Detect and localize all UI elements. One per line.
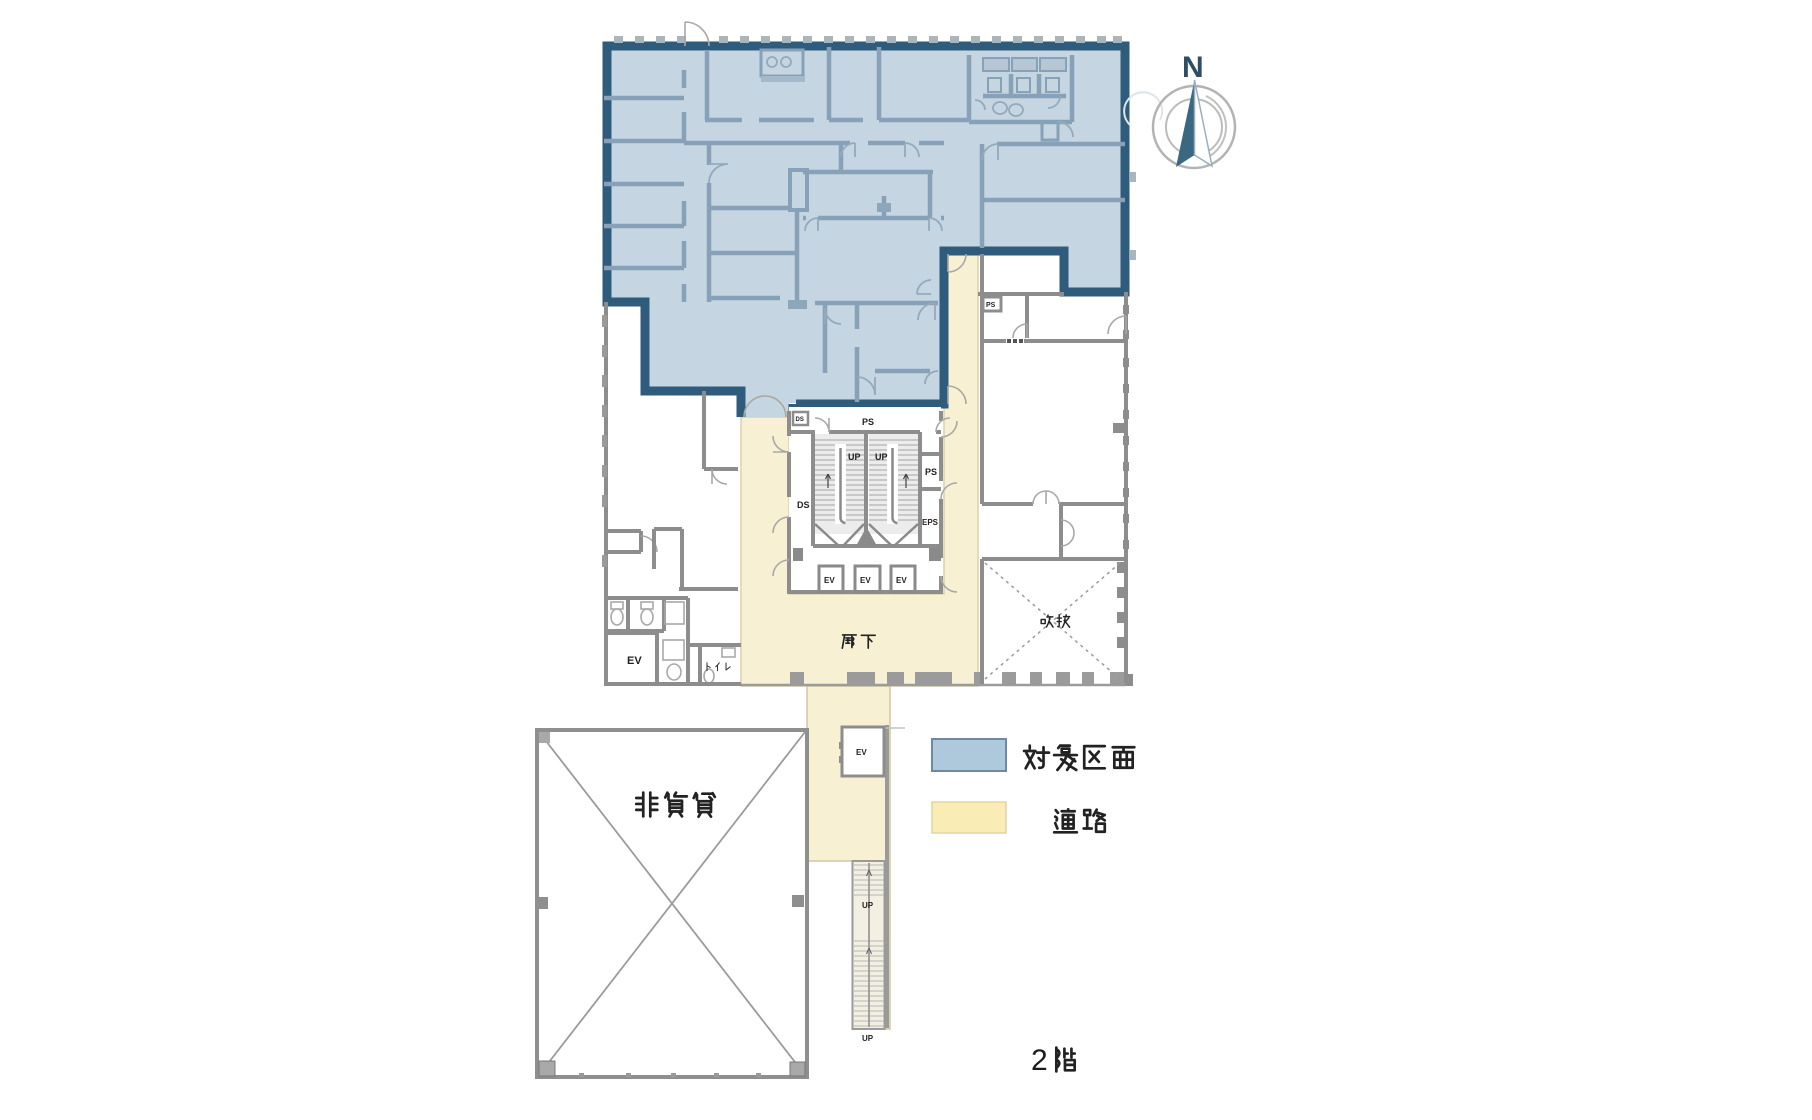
svg-text:2: 2: [1031, 1044, 1048, 1077]
svg-text:EV: EV: [856, 748, 867, 757]
svg-text:DS: DS: [796, 417, 804, 423]
svg-text:UP: UP: [875, 452, 888, 462]
svg-text:UP: UP: [862, 901, 874, 910]
svg-text:EV: EV: [860, 576, 871, 585]
svg-text:EV: EV: [627, 655, 642, 667]
svg-text:PS: PS: [925, 467, 937, 477]
svg-text:UP: UP: [862, 1034, 874, 1043]
svg-text:EV: EV: [824, 576, 835, 585]
svg-text:DS: DS: [797, 500, 810, 510]
svg-text:PS: PS: [862, 417, 874, 427]
svg-text:EPS: EPS: [922, 518, 939, 527]
svg-text:UP: UP: [848, 452, 861, 462]
svg-text:N: N: [1182, 51, 1204, 84]
svg-text:EV: EV: [896, 576, 907, 585]
svg-text:PS: PS: [986, 302, 996, 309]
